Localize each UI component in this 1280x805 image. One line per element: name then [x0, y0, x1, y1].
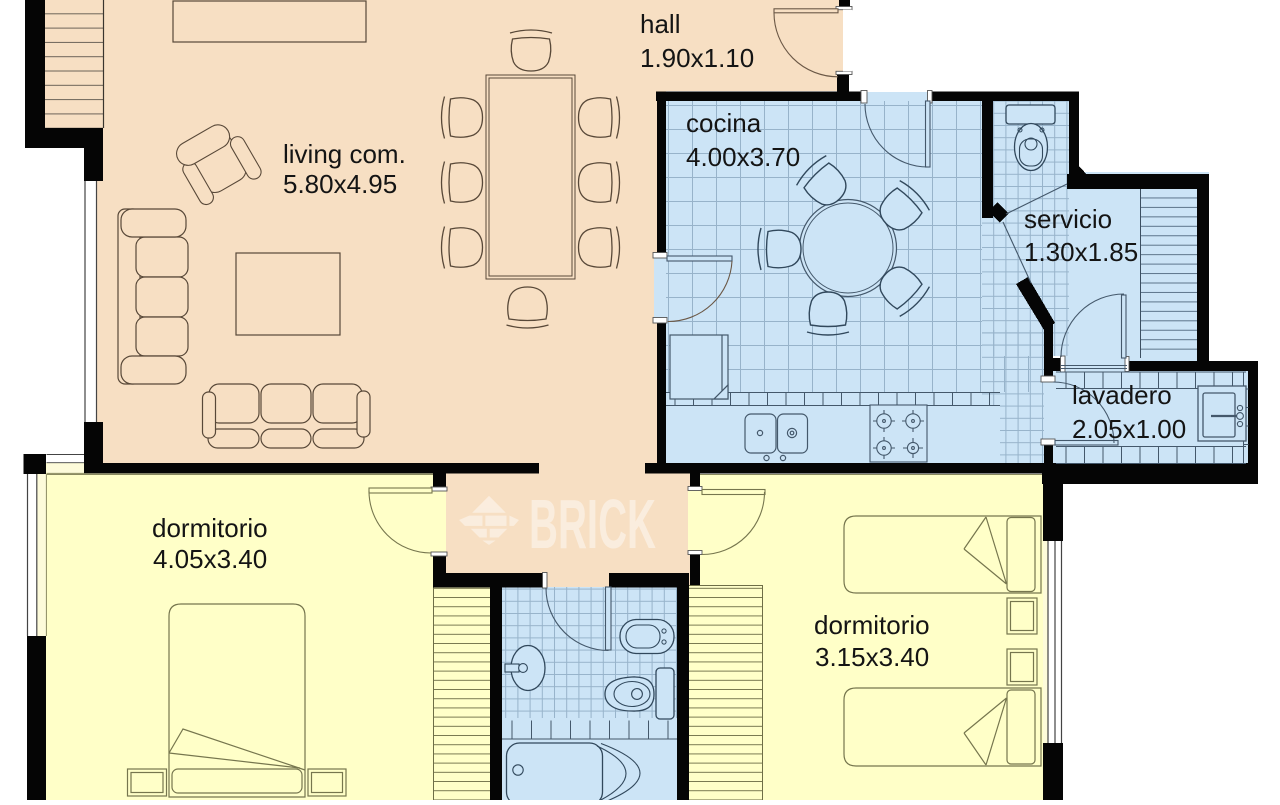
svg-text:BRICK: BRICK: [529, 485, 656, 563]
svg-text:2.05x1.00: 2.05x1.00: [1072, 414, 1186, 444]
svg-text:servicio: servicio: [1024, 204, 1112, 234]
svg-text:3.15x3.40: 3.15x3.40: [815, 642, 929, 672]
svg-text:hall: hall: [640, 9, 680, 39]
svg-text:5.80x4.95: 5.80x4.95: [283, 169, 397, 199]
svg-text:4.00x3.70: 4.00x3.70: [686, 142, 800, 172]
svg-text:dormitorio: dormitorio: [814, 610, 930, 640]
svg-text:lavadero: lavadero: [1072, 380, 1172, 410]
svg-text:cocina: cocina: [686, 108, 762, 138]
svg-text:1.30x1.85: 1.30x1.85: [1024, 237, 1138, 267]
svg-text:living com.: living com.: [283, 139, 406, 169]
svg-text:dormitorio: dormitorio: [152, 513, 268, 543]
svg-text:4.05x3.40: 4.05x3.40: [153, 544, 267, 574]
svg-text:1.90x1.10: 1.90x1.10: [640, 43, 754, 73]
